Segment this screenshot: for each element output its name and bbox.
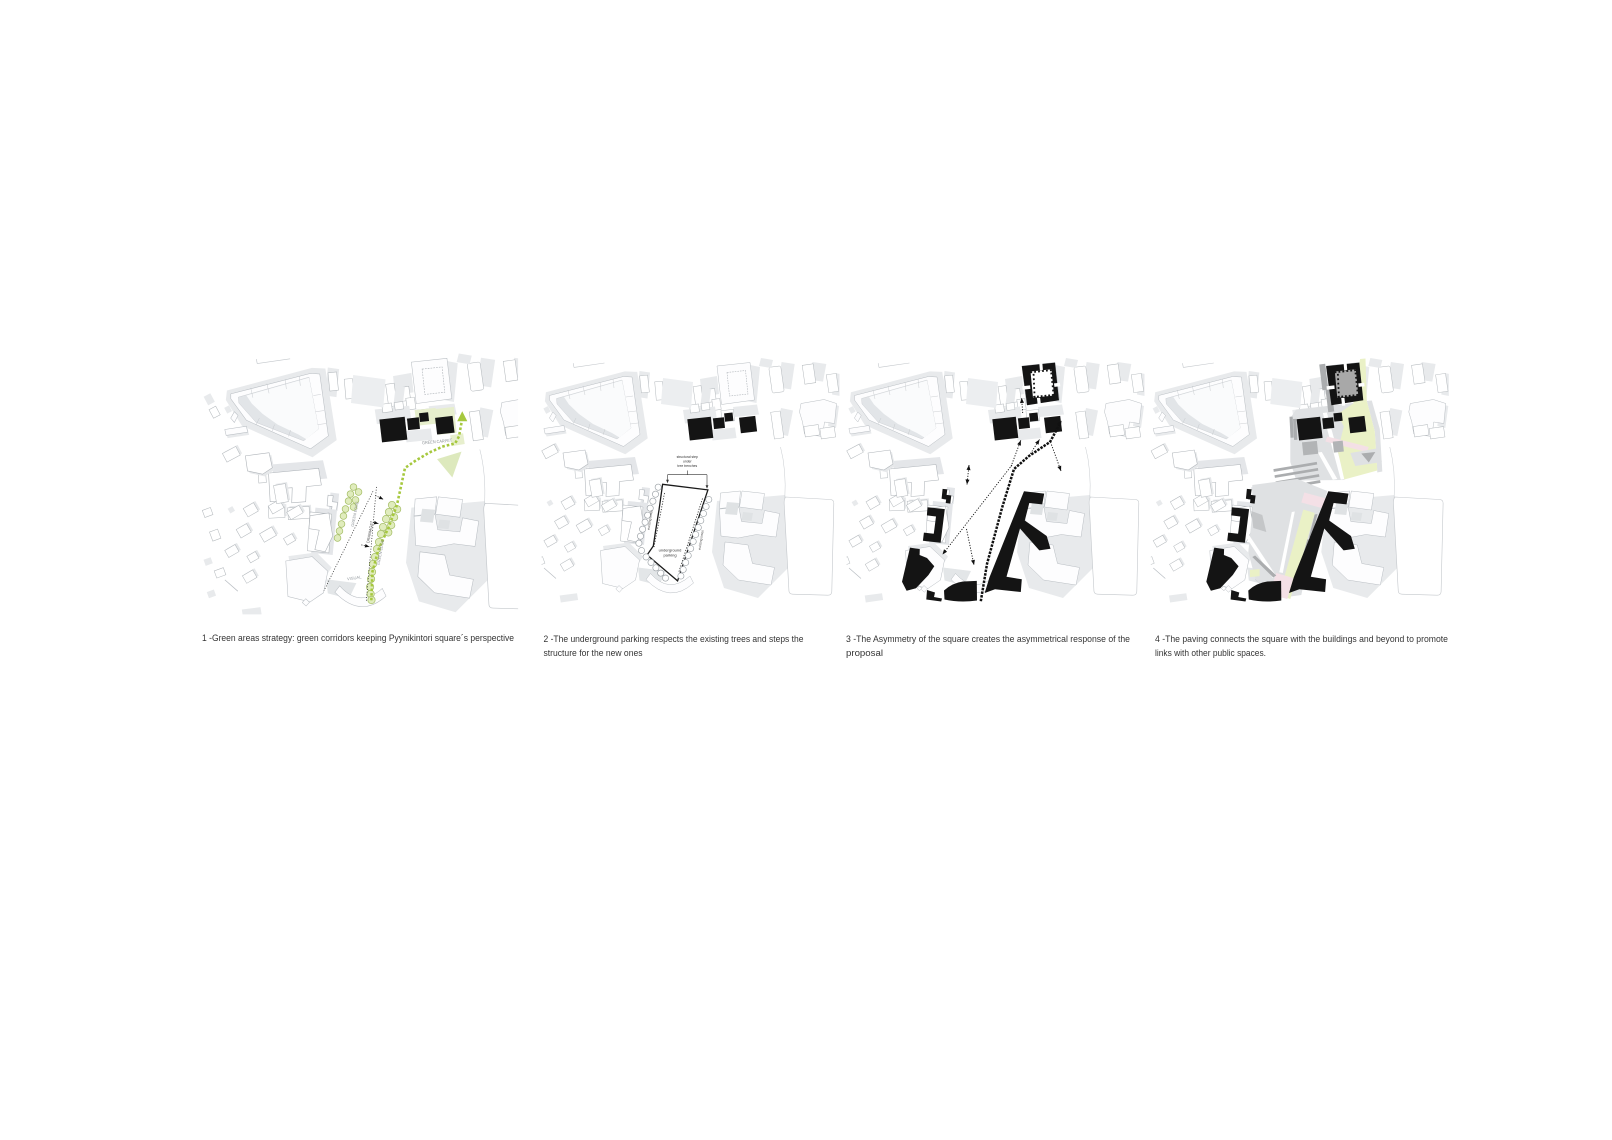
svg-text:1 -Green areas strategy: green: 1 -Green areas strategy: green corridors…: [202, 633, 514, 644]
svg-text:structure for the new ones: structure for the new ones: [544, 648, 643, 659]
svg-text:under: under: [683, 460, 693, 464]
svg-text:proposal: proposal: [846, 648, 883, 659]
svg-text:existing trees: existing trees: [698, 529, 705, 550]
svg-text:2 -The underground parking res: 2 -The underground parking respects the …: [544, 634, 804, 645]
svg-text:structural step: structural step: [677, 455, 698, 459]
svg-text:4 -The paving connects the squ: 4 -The paving connects the square with t…: [1155, 634, 1448, 645]
svg-text:VISUAL: VISUAL: [347, 574, 363, 581]
svg-text:parking: parking: [663, 553, 676, 558]
svg-text:3 -The Asymmetry of the square: 3 -The Asymmetry of the square creates t…: [846, 634, 1130, 645]
svg-text:tree trenches: tree trenches: [677, 464, 697, 468]
svg-text:links with other public spaces: links with other public spaces.: [1155, 648, 1266, 659]
